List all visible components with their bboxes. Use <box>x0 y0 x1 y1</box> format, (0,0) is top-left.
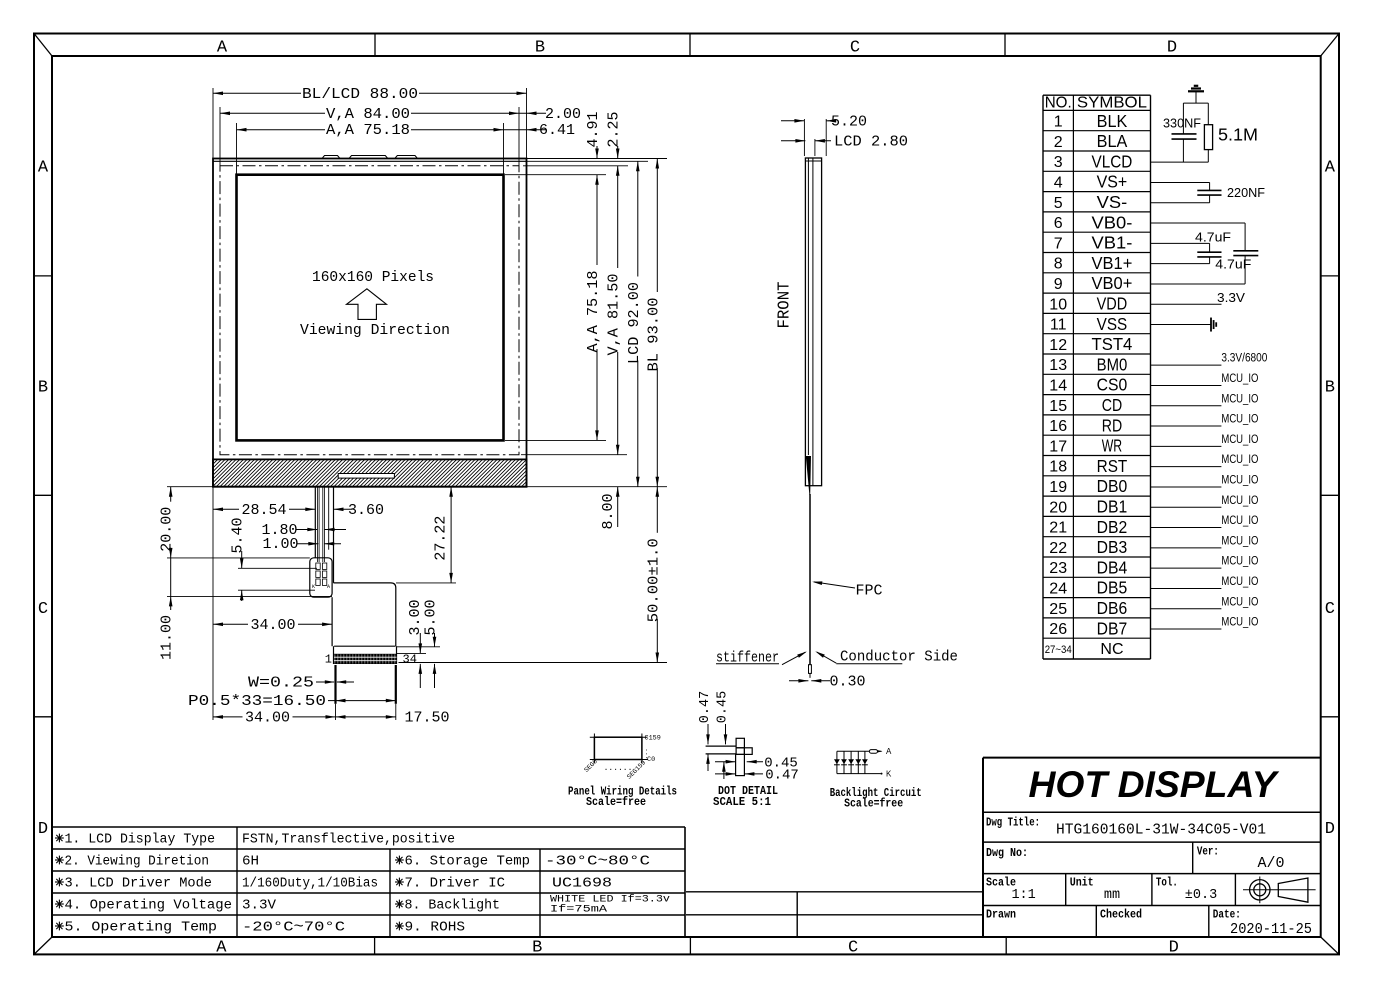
svg-text:VB1+: VB1+ <box>1092 253 1133 273</box>
svg-text:1/160Duty,1/10Bias: 1/160Duty,1/10Bias <box>242 876 378 892</box>
svg-text:9: 9 <box>1054 276 1063 293</box>
svg-text:RD: RD <box>1102 415 1122 435</box>
svg-text:0.47: 0.47 <box>765 768 799 784</box>
svg-text:A/0: A/0 <box>1257 855 1284 872</box>
svg-text:B: B <box>532 939 542 958</box>
svg-text:14: 14 <box>1049 377 1067 394</box>
svg-text:Scale=free: Scale=free <box>586 795 646 809</box>
svg-text:4: 4 <box>1054 174 1063 191</box>
svg-text:0.47: 0.47 <box>698 691 713 723</box>
svg-text:6.41: 6.41 <box>539 122 575 139</box>
svg-text:DB5: DB5 <box>1097 578 1128 598</box>
svg-text:Drawn: Drawn <box>986 908 1016 922</box>
svg-text:B: B <box>1325 379 1335 398</box>
svg-text:1: 1 <box>1054 114 1063 131</box>
svg-text:DB6: DB6 <box>1097 598 1128 618</box>
svg-text:BL 93.00: BL 93.00 <box>645 298 662 372</box>
svg-text:2: 2 <box>1054 134 1063 151</box>
svg-text:19: 19 <box>1049 479 1067 496</box>
svg-text:CD: CD <box>1102 395 1122 415</box>
svg-text:Unit: Unit <box>1070 876 1094 890</box>
svg-text:MCU_IO: MCU_IO <box>1221 596 1258 608</box>
svg-text:FSTN,Transflective,positive: FSTN,Transflective,positive <box>242 832 455 848</box>
svg-text:MCU_IO: MCU_IO <box>1221 474 1258 486</box>
svg-text:...: ... <box>644 748 651 760</box>
svg-text:mm: mm <box>1104 888 1120 903</box>
svg-text:SYMBOL: SYMBOL <box>1077 95 1147 112</box>
svg-text:MCU_IO: MCU_IO <box>1221 535 1258 547</box>
svg-text:1:1: 1:1 <box>1011 888 1035 903</box>
svg-text:VB1-: VB1- <box>1092 233 1133 253</box>
svg-text:4.91: 4.91 <box>585 111 602 147</box>
svg-text:D: D <box>38 820 48 839</box>
svg-text:P0.5*33=16.50: P0.5*33=16.50 <box>188 693 326 710</box>
svg-text:3: 3 <box>1054 154 1063 171</box>
svg-text:Date:: Date: <box>1213 908 1241 922</box>
svg-text:3.3V: 3.3V <box>1217 291 1246 305</box>
svg-text:VS+: VS+ <box>1097 172 1128 192</box>
svg-text:......: ...... <box>604 764 633 773</box>
svg-text:6: 6 <box>1054 215 1063 232</box>
svg-text:DB4: DB4 <box>1097 557 1128 577</box>
svg-text:Checked: Checked <box>1100 908 1142 922</box>
svg-text:5.40: 5.40 <box>230 517 247 553</box>
svg-text:MCU_IO: MCU_IO <box>1221 414 1258 426</box>
svg-text:DB0: DB0 <box>1097 476 1128 496</box>
svg-text:160x160 Pixels: 160x160 Pixels <box>312 270 434 286</box>
svg-text:10: 10 <box>1049 296 1067 313</box>
svg-text:A: A <box>886 747 892 756</box>
svg-text:22: 22 <box>1049 540 1067 557</box>
svg-text:5.1M: 5.1M <box>1218 125 1258 145</box>
svg-text:A: A <box>216 939 227 958</box>
svg-text:23: 23 <box>1049 560 1067 577</box>
svg-text:MCU_IO: MCU_IO <box>1221 556 1258 568</box>
svg-text:12: 12 <box>1049 337 1067 354</box>
svg-text:HTG160160L-31W-34C05-V01: HTG160160L-31W-34C05-V01 <box>1056 822 1266 839</box>
svg-text:A,A 75.18: A,A 75.18 <box>326 122 410 139</box>
svg-text:0.45: 0.45 <box>716 691 731 723</box>
svg-text:6H: 6H <box>242 854 259 870</box>
svg-text:220NF: 220NF <box>1227 186 1265 200</box>
svg-text:MCU_IO: MCU_IO <box>1221 454 1258 466</box>
svg-text:17: 17 <box>1049 438 1067 455</box>
svg-text:MCU_IO: MCU_IO <box>1221 434 1258 446</box>
svg-text:C: C <box>848 939 858 958</box>
svg-text:MCU_IO: MCU_IO <box>1221 617 1258 629</box>
svg-text:SCALE 5:1: SCALE 5:1 <box>713 795 771 809</box>
svg-text:24: 24 <box>1049 580 1067 597</box>
svg-text:BLK: BLK <box>1097 111 1128 131</box>
svg-text:27.22: 27.22 <box>433 516 450 561</box>
svg-text:34: 34 <box>403 652 417 666</box>
svg-text:6. Storage Temp: 6. Storage Temp <box>405 854 531 870</box>
svg-text:50.00±1.0: 50.00±1.0 <box>645 538 662 622</box>
svg-text:3.3V: 3.3V <box>242 898 277 914</box>
svg-text:C: C <box>38 600 48 619</box>
svg-text:34.00: 34.00 <box>250 617 295 634</box>
svg-text:2. Viewing Diretion: 2. Viewing Diretion <box>65 854 210 870</box>
svg-text:B: B <box>535 39 545 58</box>
svg-text:8.00: 8.00 <box>600 493 617 529</box>
svg-text:4. Operating Voltage: 4. Operating Voltage <box>65 898 233 914</box>
svg-text:Ver:: Ver: <box>1197 845 1219 859</box>
svg-text:A: A <box>1325 159 1336 178</box>
svg-text:Dwg No:: Dwg No: <box>986 846 1028 860</box>
svg-text:0.30: 0.30 <box>829 673 865 690</box>
svg-text:-20°C~70°C: -20°C~70°C <box>242 920 345 936</box>
svg-text:7. Driver IC: 7. Driver IC <box>405 876 506 892</box>
svg-text:VB0+: VB0+ <box>1092 273 1133 293</box>
svg-text:Tol.: Tol. <box>1156 876 1178 890</box>
svg-text:26: 26 <box>1049 621 1067 638</box>
svg-text:Viewing Direction: Viewing Direction <box>300 323 450 339</box>
svg-text:17.50: 17.50 <box>404 709 449 726</box>
svg-text:C159: C159 <box>645 734 661 742</box>
svg-text:MCU_IO: MCU_IO <box>1221 515 1258 527</box>
svg-text:34.00: 34.00 <box>245 709 290 726</box>
svg-text:D: D <box>1169 939 1179 958</box>
svg-text:If=75mA: If=75mA <box>550 904 607 916</box>
svg-text:MCU_IO: MCU_IO <box>1221 373 1258 385</box>
svg-text:2.00: 2.00 <box>545 106 581 123</box>
svg-text:-30°C~80°C: -30°C~80°C <box>545 854 650 870</box>
svg-text:11: 11 <box>1050 317 1067 334</box>
svg-text:MCU_IO: MCU_IO <box>1221 495 1258 507</box>
svg-text:VB0-: VB0- <box>1092 212 1133 232</box>
svg-text:DB1: DB1 <box>1097 496 1128 516</box>
svg-text:3.3V/6800: 3.3V/6800 <box>1221 353 1267 365</box>
svg-text:LCD 2.80: LCD 2.80 <box>834 133 908 150</box>
svg-text:HOT DISPLAY: HOT DISPLAY <box>1029 764 1280 805</box>
svg-text:16: 16 <box>1049 418 1067 435</box>
svg-text:18: 18 <box>1049 459 1067 476</box>
svg-text:BL/LCD 88.00: BL/LCD 88.00 <box>302 86 418 103</box>
svg-text:3.00: 3.00 <box>407 599 424 635</box>
svg-text:B: B <box>38 379 48 398</box>
svg-text:K: K <box>312 584 315 590</box>
svg-text:330NF: 330NF <box>1163 117 1201 131</box>
svg-text:C: C <box>1325 600 1335 619</box>
svg-text:V,A 84.00: V,A 84.00 <box>326 106 410 123</box>
svg-text:±0.3: ±0.3 <box>1185 888 1217 903</box>
svg-text:28.54: 28.54 <box>241 502 286 519</box>
svg-text:WR: WR <box>1102 436 1122 456</box>
svg-text:NO.: NO. <box>1045 95 1072 112</box>
svg-text:VDD: VDD <box>1097 293 1128 313</box>
svg-text:2020-11-25: 2020-11-25 <box>1230 921 1312 938</box>
svg-text:5.00: 5.00 <box>423 599 440 635</box>
svg-text:9. ROHS: 9. ROHS <box>405 920 466 936</box>
svg-text:20: 20 <box>1049 499 1067 516</box>
svg-text:D: D <box>1167 39 1177 58</box>
svg-text:LCD 92.00: LCD 92.00 <box>626 282 643 364</box>
svg-text:7: 7 <box>1054 235 1063 252</box>
svg-text:FRONT: FRONT <box>775 281 794 328</box>
svg-text:5.20: 5.20 <box>831 113 867 130</box>
svg-text:5: 5 <box>1054 195 1063 212</box>
svg-text:1.00: 1.00 <box>262 536 298 553</box>
svg-text:DB7: DB7 <box>1097 618 1128 638</box>
svg-text:1. LCD Display Type: 1. LCD Display Type <box>65 832 216 848</box>
svg-text:5. Operating Temp: 5. Operating Temp <box>65 920 218 936</box>
svg-text:DB2: DB2 <box>1097 517 1128 537</box>
svg-text:V,A 81.50: V,A 81.50 <box>606 274 623 356</box>
svg-text:BM0: BM0 <box>1097 354 1128 374</box>
svg-text:A: A <box>38 159 49 178</box>
svg-text:CS0: CS0 <box>1097 375 1128 395</box>
svg-text:RST: RST <box>1097 456 1128 476</box>
svg-text:UC1698: UC1698 <box>552 876 612 892</box>
svg-text:11.00: 11.00 <box>159 615 176 660</box>
svg-text:25: 25 <box>1049 601 1067 618</box>
svg-text:VSS: VSS <box>1097 314 1128 334</box>
svg-text:Dwg Title:: Dwg Title: <box>986 816 1040 830</box>
svg-text:BLA: BLA <box>1097 131 1128 151</box>
svg-text:FPC: FPC <box>855 583 882 600</box>
svg-text:TST4: TST4 <box>1092 334 1133 354</box>
svg-text:D: D <box>1325 820 1335 839</box>
svg-text:Conductor Side: Conductor Side <box>840 649 958 666</box>
svg-text:8: 8 <box>1054 256 1063 273</box>
svg-text:VS-: VS- <box>1097 192 1128 212</box>
svg-text:A: A <box>217 39 228 58</box>
svg-text:Scale=free: Scale=free <box>844 797 903 811</box>
svg-text:A,A 75.18: A,A 75.18 <box>585 271 602 353</box>
svg-text:21: 21 <box>1049 520 1067 537</box>
svg-text:13: 13 <box>1049 357 1067 374</box>
svg-text:MCU_IO: MCU_IO <box>1221 576 1258 588</box>
svg-text:3.60: 3.60 <box>348 502 384 519</box>
svg-text:15: 15 <box>1049 398 1067 415</box>
svg-text:VLCD: VLCD <box>1092 151 1133 171</box>
svg-text:4.7uF: 4.7uF <box>1215 257 1251 271</box>
svg-text:A: A <box>327 584 330 590</box>
svg-text:W=0.25: W=0.25 <box>248 675 314 692</box>
svg-text:DB3: DB3 <box>1097 537 1128 557</box>
svg-text:27~34: 27~34 <box>1045 644 1072 656</box>
svg-text:1: 1 <box>325 652 332 666</box>
svg-text:C: C <box>850 39 860 58</box>
svg-text:2.25: 2.25 <box>606 111 623 147</box>
svg-text:K: K <box>886 770 892 779</box>
svg-text:NC: NC <box>1100 641 1123 658</box>
svg-text:8. Backlight: 8. Backlight <box>405 898 501 914</box>
svg-text:3. LCD Driver Mode: 3. LCD Driver Mode <box>65 876 213 892</box>
svg-text:MCU_IO: MCU_IO <box>1221 393 1258 405</box>
svg-text:4.7uF: 4.7uF <box>1195 230 1231 244</box>
svg-text:20.00: 20.00 <box>159 507 176 552</box>
